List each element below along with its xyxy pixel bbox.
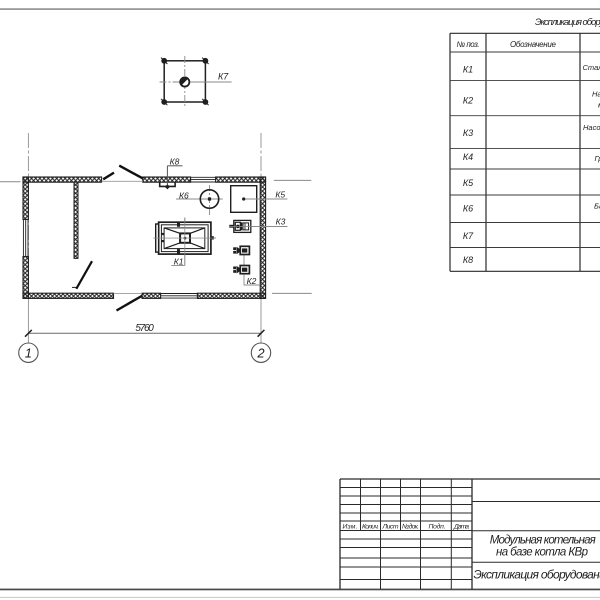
svg-text:2: 2 [256,346,265,361]
svg-text:Модульная котельная: Модульная котельная [490,535,596,547]
svg-text:№ поз.: № поз. [457,40,480,49]
svg-text:Насос подпиточный: Насос подпиточный [583,123,600,132]
svg-text:К1: К1 [463,65,473,75]
svg-text:К3: К3 [463,128,473,138]
svg-text:Лист: Лист [382,523,399,530]
svg-text:Колич.: Колич. [362,523,379,530]
svg-text:К7: К7 [218,71,229,81]
svg-text:К5: К5 [275,189,285,199]
svg-text:Обозначение: Обозначение [510,40,557,49]
svg-text:К4: К4 [463,152,473,162]
svg-text:Бак расширительный: Бак расширительный [594,202,600,211]
svg-text:К6: К6 [463,203,473,213]
svg-text:5760: 5760 [135,323,154,334]
svg-text:на базе котла КВр: на базе котла КВр [496,547,589,559]
svg-text:К6: К6 [179,190,189,200]
svg-text:К8: К8 [170,157,180,167]
svg-text:К1: К1 [174,256,184,266]
svg-text:К8: К8 [463,255,473,265]
svg-text:Насос сетевой: Насос сетевой [592,89,600,98]
svg-text:К5: К5 [463,178,474,188]
svg-text:Экспликация оборудования: Экспликация оборудования [474,567,600,581]
svg-text:Экспликация оборудования: Экспликация оборудования [535,17,600,28]
svg-text:К7: К7 [463,231,474,241]
svg-text:К2: К2 [463,96,473,106]
svg-text:К3: К3 [276,217,286,227]
svg-text:Грязевик: Грязевик [595,154,600,163]
svg-text:№док.: №док. [402,522,419,530]
svg-text:Стальной котел: Стальной котел [583,63,600,72]
svg-text:Изм.: Изм. [343,523,358,530]
svg-text:К2: К2 [247,276,257,286]
svg-text:Подп.: Подп. [429,522,446,530]
svg-text:1: 1 [25,346,32,361]
svg-text:Дата: Дата [453,523,469,530]
